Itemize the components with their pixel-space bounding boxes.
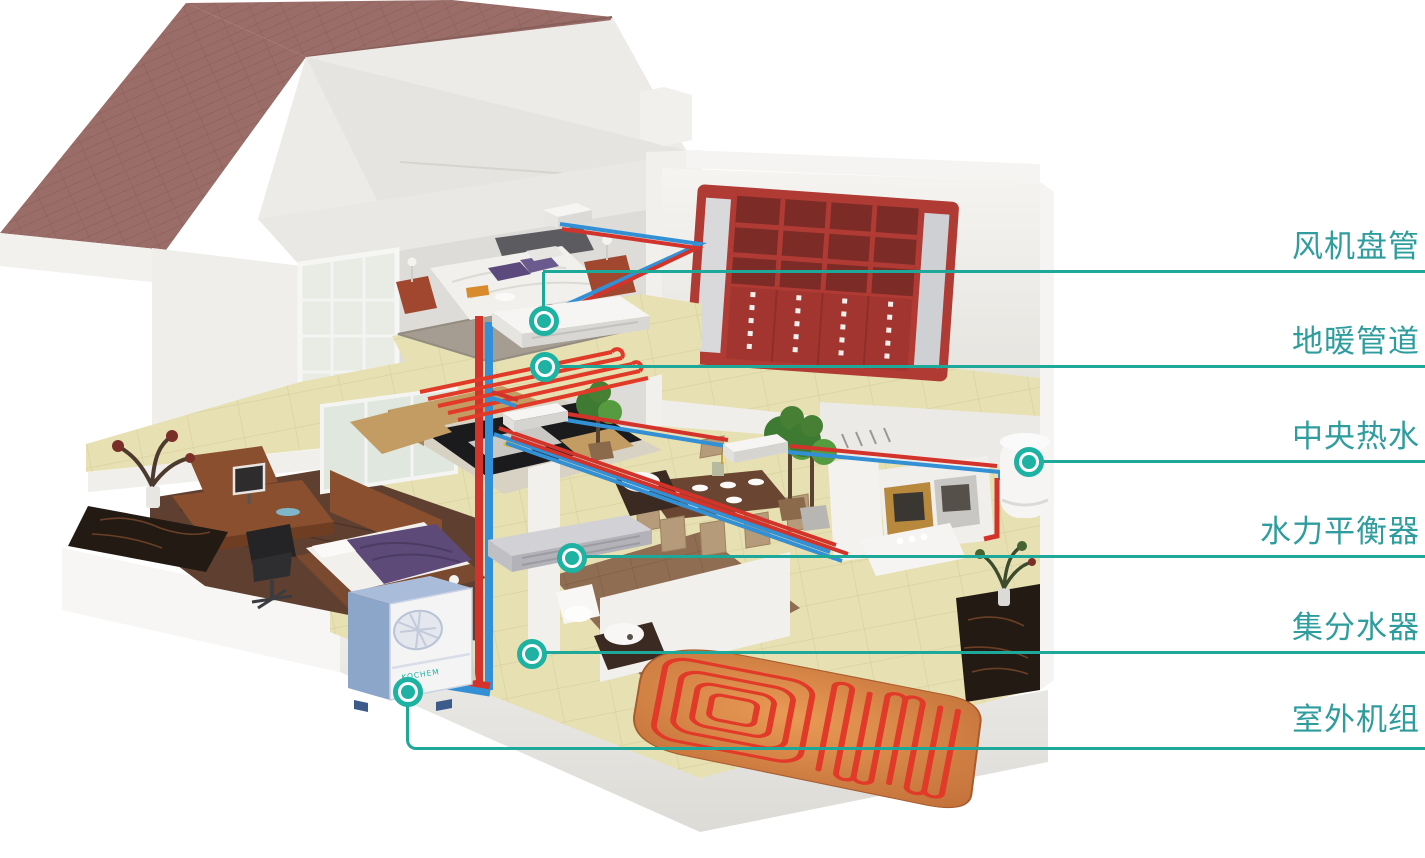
callout-line <box>406 704 1425 750</box>
callout-label-hydraulic-balancer: 水力平衡器 <box>1260 514 1420 550</box>
callout-marker-outdoor-unit <box>393 677 423 707</box>
callout-marker-manifold <box>517 639 547 669</box>
callout-line <box>572 555 1425 558</box>
callout-line <box>1029 460 1425 463</box>
callout-label-fan-coil: 风机盘管 <box>1292 229 1420 265</box>
callout-label-manifold: 集分水器 <box>1292 610 1420 646</box>
callout-marker-hydraulic-balancer <box>557 543 587 573</box>
monitor <box>234 464 264 494</box>
callout-label-outdoor-unit: 室外机组 <box>1292 702 1420 738</box>
basin-2 <box>604 623 644 645</box>
red-bookshelf <box>685 184 959 382</box>
callout-marker-fan-coil <box>529 306 559 336</box>
callout-marker-floor-heating <box>530 352 560 382</box>
callout-line <box>543 270 1425 273</box>
illustration-canvas: KOCHEM 风机盘管 地暖管道 中央热水 水力平衡器 集分水器 室外机组 <box>0 0 1425 858</box>
callout-line <box>532 651 1425 654</box>
callout-marker-central-hot-water <box>1014 447 1044 477</box>
callout-line <box>545 365 1425 368</box>
callout-label-central-hot-water: 中央热水 <box>1292 419 1420 455</box>
chimney <box>640 87 692 146</box>
callout-label-floor-heating: 地暖管道 <box>1292 324 1420 360</box>
callout-line <box>542 272 545 308</box>
